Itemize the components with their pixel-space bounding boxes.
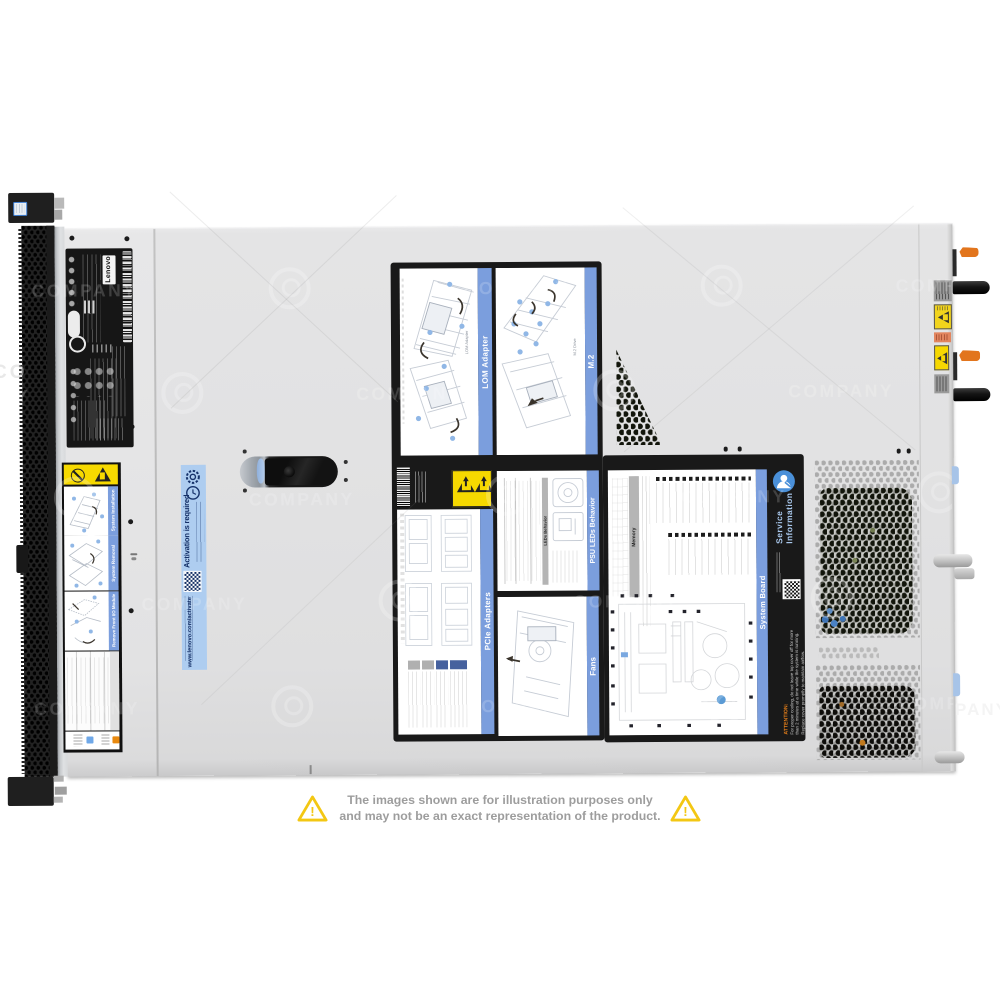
svg-text:LOM Adapter: LOM Adapter [464, 330, 469, 354]
svg-text:M.2 Drive: M.2 Drive [572, 338, 577, 356]
